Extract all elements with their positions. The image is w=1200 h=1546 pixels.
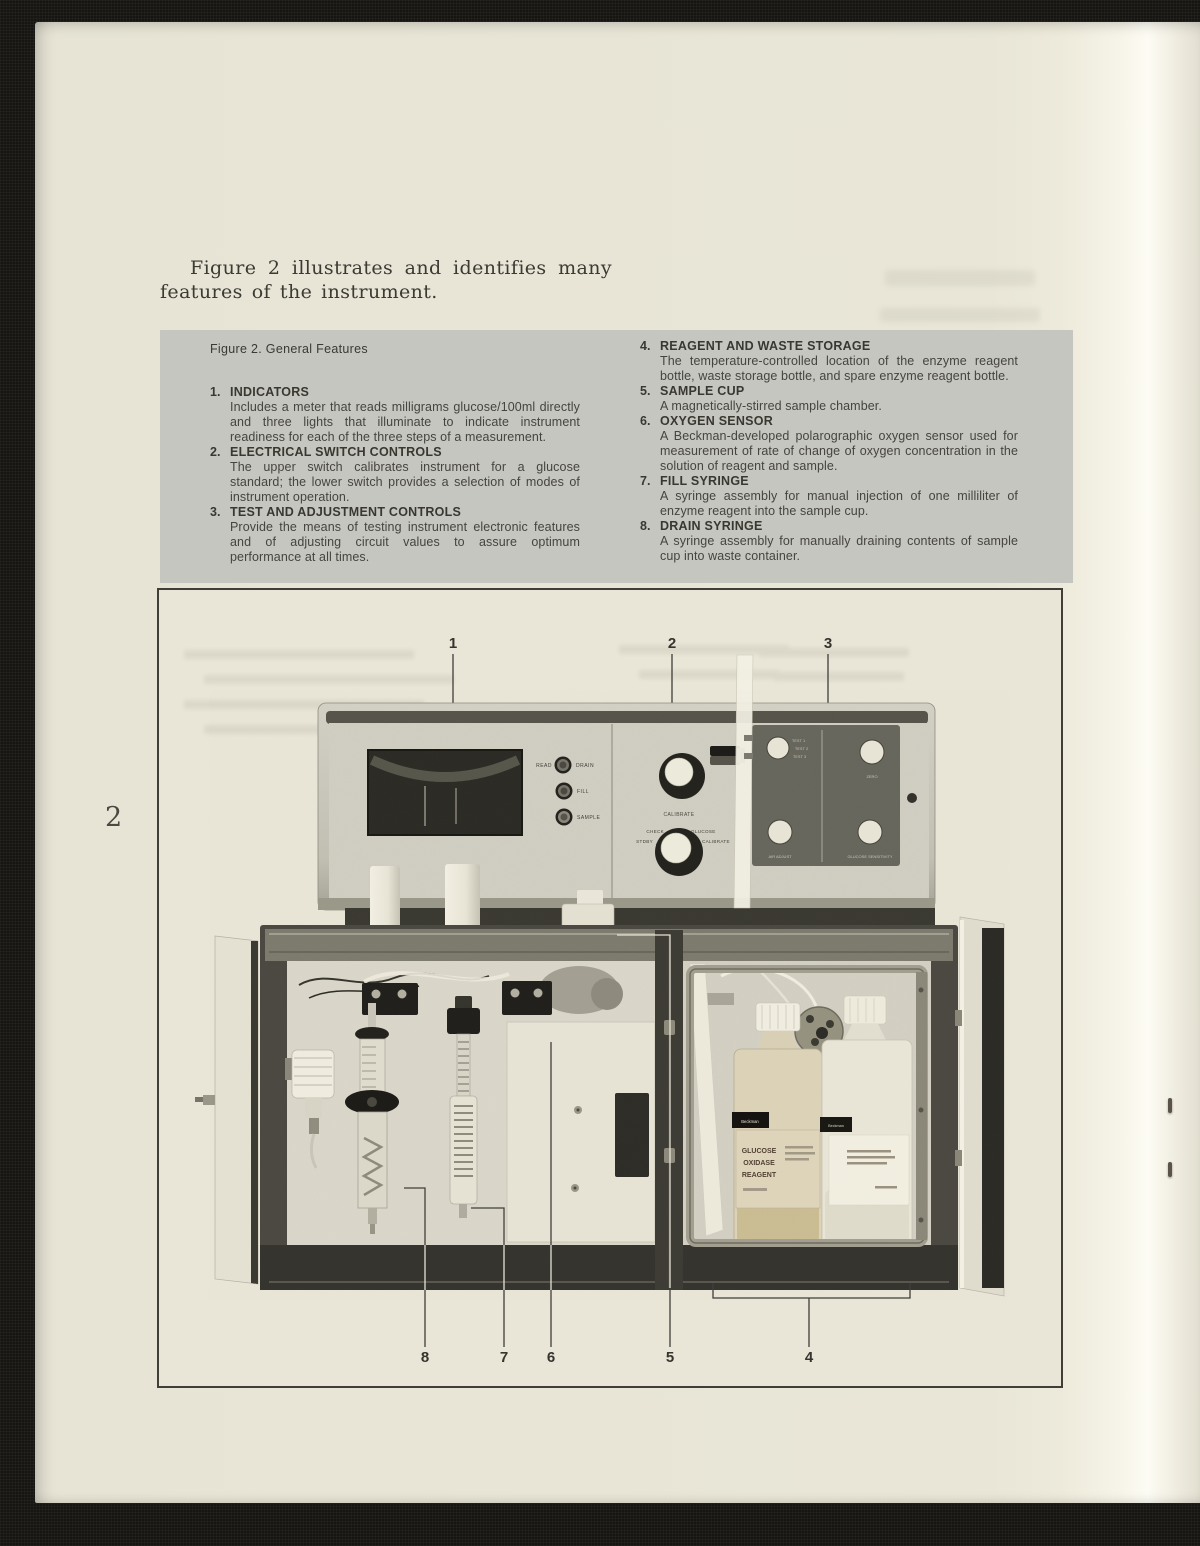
feature-number: 8. [640, 519, 660, 564]
feature-item-4: 4. REAGENT AND WASTE STORAGE The tempera… [640, 339, 1018, 384]
feature-number: 1. [210, 385, 230, 445]
feature-title: OXYGEN SENSOR [660, 414, 1018, 429]
feature-number: 3. [210, 505, 230, 565]
instrument-photo: 1 2 3 [159, 590, 1061, 1386]
feature-title: SAMPLE CUP [660, 384, 1018, 399]
feature-description: The upper switch calibrates instrument f… [230, 460, 580, 505]
features-column-right: 4. REAGENT AND WASTE STORAGE The tempera… [640, 339, 1018, 564]
feature-number: 7. [640, 474, 660, 519]
feature-item-8: 8. DRAIN SYRINGE A syringe assembly for … [640, 519, 1018, 564]
figure-caption: Figure 2. General Features [210, 342, 368, 356]
feature-item-5: 5. SAMPLE CUP A magnetically-stirred sam… [640, 384, 1018, 414]
figure2-photo-frame: 1 2 3 [157, 588, 1063, 1388]
page-number: 2 [105, 802, 122, 833]
feature-description: A Beckman-developed polarographic oxygen… [660, 429, 1018, 474]
feature-title: INDICATORS [230, 385, 580, 400]
binding-staple [1168, 1162, 1172, 1177]
feature-description: Provide the means of testing instrument … [230, 520, 580, 565]
photo-grain-overlay [209, 690, 1009, 1300]
feature-description: The temperature-controlled location of t… [660, 354, 1018, 384]
feature-title: REAGENT AND WASTE STORAGE [660, 339, 1018, 354]
feature-description: A syringe assembly for manually draining… [660, 534, 1018, 564]
feature-item-2: 2. ELECTRICAL SWITCH CONTROLS The upper … [210, 445, 580, 505]
print-through-ghost [885, 270, 1035, 286]
feature-item-1: 1. INDICATORS Includes a meter that read… [210, 385, 580, 445]
callout-3-label: 3 [824, 635, 832, 652]
callout-6-label: 6 [547, 1349, 555, 1366]
callout-1-label: 1 [449, 635, 457, 652]
callout-8-label: 8 [421, 1349, 429, 1366]
feature-title: TEST AND ADJUSTMENT CONTROLS [230, 505, 580, 520]
feature-title: DRAIN SYRINGE [660, 519, 1018, 534]
feature-number: 5. [640, 384, 660, 414]
print-through-ghost [880, 308, 1040, 322]
feature-description: A magnetically-stirred sample chamber. [660, 399, 1018, 414]
callout-4-label: 4 [805, 1349, 814, 1366]
feature-title: FILL SYRINGE [660, 474, 1018, 489]
feature-number: 6. [640, 414, 660, 474]
feature-number: 4. [640, 339, 660, 384]
feature-title: ELECTRICAL SWITCH CONTROLS [230, 445, 580, 460]
feature-item-6: 6. OXYGEN SENSOR A Beckman-developed pol… [640, 414, 1018, 474]
feature-description: A syringe assembly for manual injection … [660, 489, 1018, 519]
intro-paragraph: Figure 2 illustrates and identifies many… [160, 256, 612, 304]
callout-2-label: 2 [668, 635, 676, 652]
feature-number: 2. [210, 445, 230, 505]
feature-item-3: 3. TEST AND ADJUSTMENT CONTROLS Provide … [210, 505, 580, 565]
feature-description: Includes a meter that reads milligrams g… [230, 400, 580, 445]
callout-7-label: 7 [500, 1349, 508, 1366]
binding-staple [1168, 1098, 1172, 1113]
features-column-left: 1. INDICATORS Includes a meter that read… [210, 385, 580, 565]
manual-page: 2 Figure 2 illustrates and identifies ma… [35, 22, 1200, 1503]
callout-5-label: 5 [666, 1349, 674, 1366]
feature-item-7: 7. FILL SYRINGE A syringe assembly for m… [640, 474, 1018, 519]
figure2-features-box: Figure 2. General Features 1. INDICATORS… [160, 330, 1073, 583]
